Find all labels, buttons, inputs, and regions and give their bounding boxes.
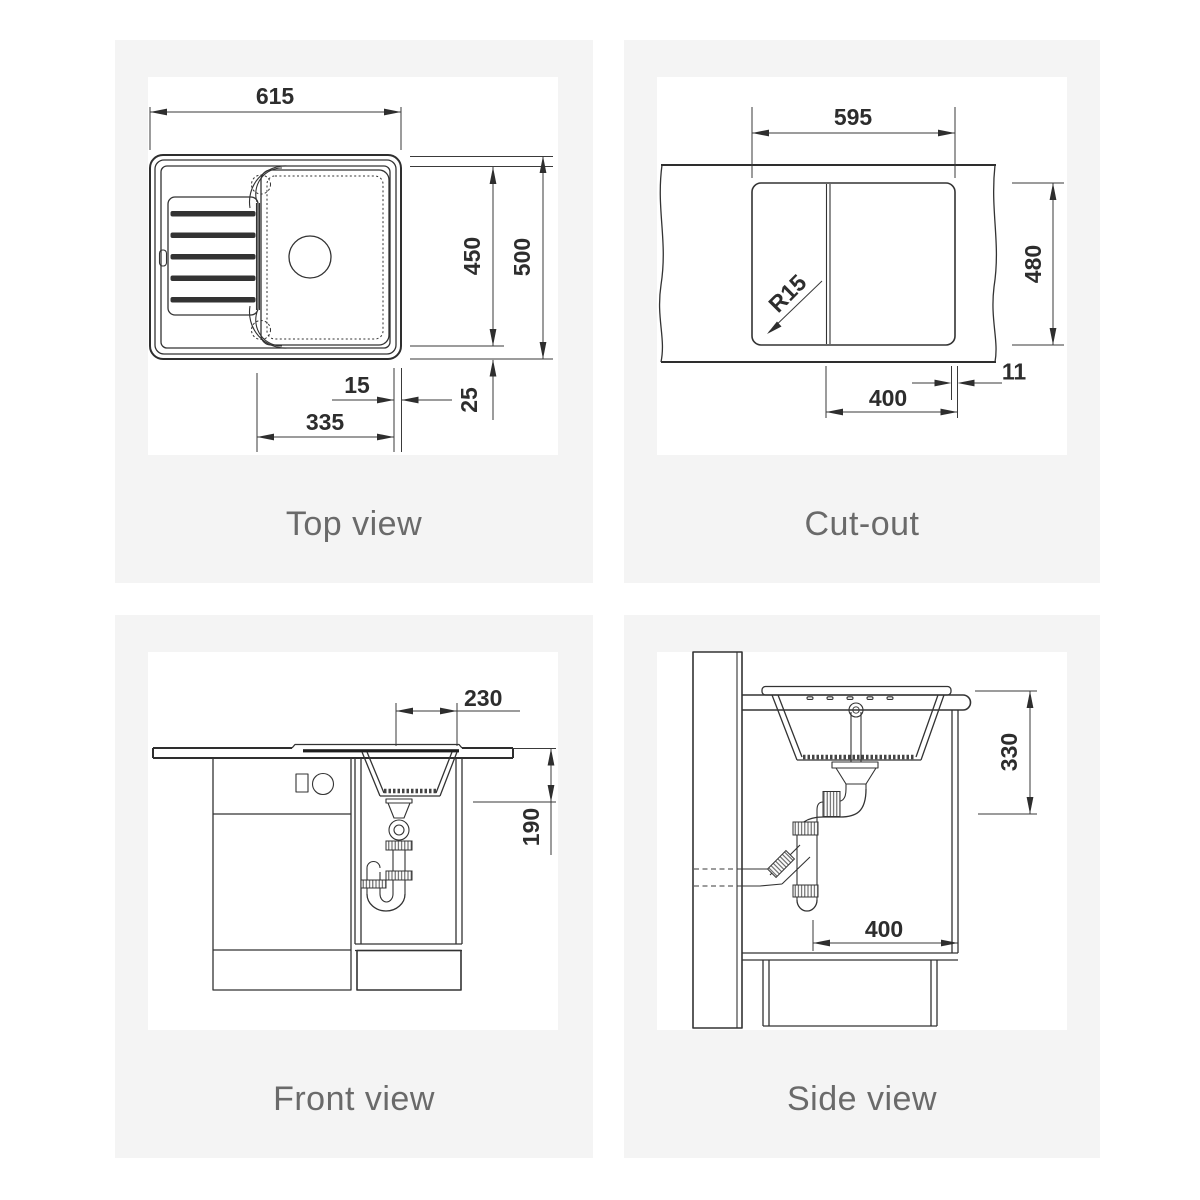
panel-caption-side-view: Side view xyxy=(624,1079,1100,1119)
dim-label-25: 25 xyxy=(456,387,482,413)
dim-label-15: 15 xyxy=(344,372,370,398)
panel-top-view: 615 450 500 25 15 xyxy=(115,40,593,583)
dim-label-595: 595 xyxy=(834,104,873,130)
dim-label-11: 11 xyxy=(1002,359,1027,385)
dim-label-400: 400 xyxy=(865,916,903,942)
drawing-area xyxy=(657,652,1067,1030)
dim-label-400: 400 xyxy=(869,385,907,411)
panel-cut-out: R15 595 480 400 11 Cut-out xyxy=(624,40,1100,583)
front-view-drawing: 230 190 xyxy=(115,615,593,1158)
drawing-area xyxy=(657,77,1067,455)
dim-label-450: 450 xyxy=(459,237,485,275)
drawing-area xyxy=(148,77,558,455)
cut-out-drawing: R15 595 480 400 11 xyxy=(624,40,1100,583)
panel-caption-front-view: Front view xyxy=(115,1079,593,1119)
dim-label-190: 190 xyxy=(518,808,544,846)
panel-side-view: 330 400 Side view xyxy=(624,615,1100,1158)
panel-caption-cut-out: Cut-out xyxy=(624,504,1100,544)
dim-label-230: 230 xyxy=(464,685,502,711)
dim-label-480: 480 xyxy=(1020,245,1046,283)
panel-front-view: 230 190 Front view xyxy=(115,615,593,1158)
dim-label-335: 335 xyxy=(306,409,345,435)
drainboard xyxy=(160,197,259,315)
panel-caption-top-view: Top view xyxy=(115,504,593,544)
dim-label-330: 330 xyxy=(996,733,1022,771)
top-view-drawing: 615 450 500 25 15 xyxy=(115,40,593,583)
sink-section-band xyxy=(303,749,459,752)
side-view-drawing: 330 400 xyxy=(624,615,1100,1158)
dim-label-615: 615 xyxy=(256,83,295,109)
sink-spec-sheet: { "colors": { "page_bg": "#ffffff", "pan… xyxy=(0,0,1200,1200)
dim-label-500: 500 xyxy=(509,238,535,276)
